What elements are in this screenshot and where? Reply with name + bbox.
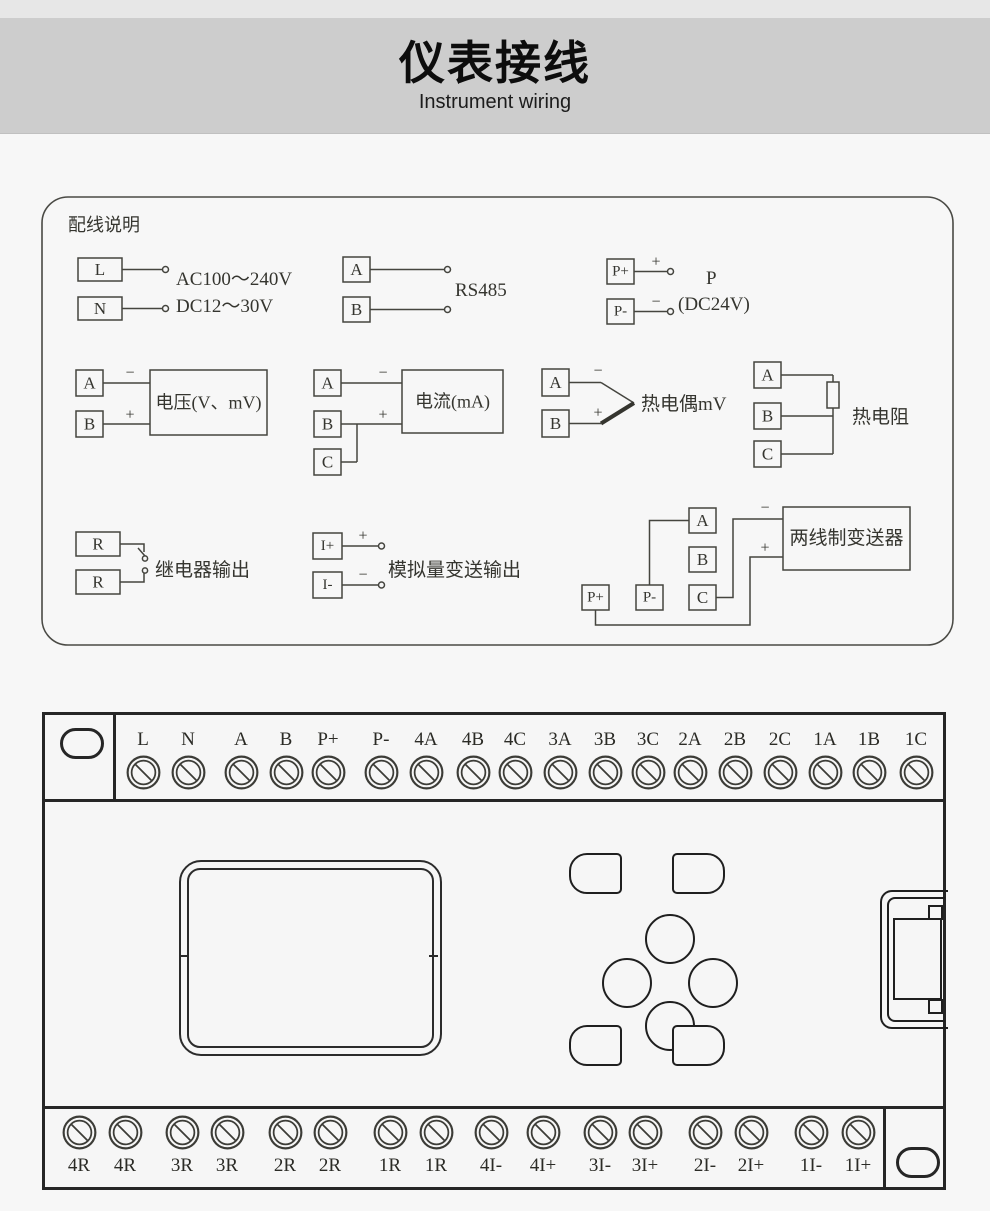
screw-terminal-icon (840, 1114, 877, 1151)
terminal-R2: R (92, 573, 104, 592)
screw-terminal-icon (408, 754, 445, 791)
panel-title: 配线说明 (68, 215, 140, 235)
power-label-dc: DC12～30V (176, 296, 273, 317)
terminal-B: B (322, 415, 333, 434)
terminal-L: L (95, 260, 105, 279)
page-title: 仪表接线 (399, 38, 591, 88)
bottom-strip-divider (45, 1106, 943, 1109)
screw-terminal-icon (733, 1114, 770, 1151)
terminal-A: A (696, 511, 709, 530)
screw-terminal-icon (455, 754, 492, 791)
bottom-terminal-3I-minus: 3I- (578, 1114, 622, 1177)
screw-terminal-icon (672, 754, 709, 791)
mounting-hole-bottom-right (896, 1147, 940, 1178)
key-left (602, 958, 652, 1008)
screw-terminal-icon (687, 1114, 724, 1151)
top-terminal-1C: 1C (894, 729, 938, 791)
minus-sign: − (593, 363, 602, 380)
screw-terminal-icon (525, 1114, 562, 1151)
plus-sign: + (760, 540, 769, 557)
terminal-B: B (84, 415, 95, 434)
mounting-hole-top-left (60, 728, 104, 759)
terminal-P-minus: P- (614, 304, 627, 320)
thermocouple-label: 热电偶mV (641, 393, 727, 415)
wiring-instructions-panel: 配线说明 L N AC100～240V DC12～30V A B RS485 (0, 175, 990, 665)
side-connector-socket (893, 918, 942, 1000)
minus-sign: − (651, 294, 660, 311)
bottom-terminal-4R-a: 4R (57, 1114, 101, 1177)
plus-sign: + (125, 407, 134, 424)
top-terminal-B: B (264, 729, 308, 791)
rs485-diagram: A B RS485 (343, 257, 507, 322)
terminal-B: B (697, 550, 708, 569)
screw-terminal-icon (587, 754, 624, 791)
top-terminal-3C: 3C (626, 729, 670, 791)
bottom-terminal-3I-plus: 3I+ (623, 1114, 667, 1177)
top-terminal-A: A (219, 729, 263, 791)
power-label-ac: AC100～240V (176, 269, 292, 290)
terminal-I-minus: I- (323, 577, 333, 593)
plus-sign: + (358, 528, 367, 545)
screw-terminal-icon (268, 754, 305, 791)
screw-terminal-icon (418, 1114, 455, 1151)
screw-terminal-icon (209, 1114, 246, 1151)
page-subtitle: Instrument wiring (419, 90, 571, 114)
terminal-A: A (350, 260, 363, 279)
top-terminal-3A: 3A (538, 729, 582, 791)
bottom-terminal-2I-plus: 2I+ (729, 1114, 773, 1177)
terminal-C: C (697, 588, 708, 607)
screw-terminal-icon (125, 754, 162, 791)
key-bottom-right (672, 1025, 725, 1066)
key-top-left (569, 853, 622, 894)
rs485-label: RS485 (455, 280, 507, 301)
screw-terminal-icon (372, 1114, 409, 1151)
bottom-terminal-2I-minus: 2I- (683, 1114, 727, 1177)
voltage-input-diagram: A B − + 电压(V、mV) (76, 365, 267, 438)
screw-terminal-icon (170, 754, 207, 791)
top-terminal-P-minus: P- (359, 729, 403, 791)
bottom-terminal-1I-minus: 1I- (789, 1114, 833, 1177)
screw-terminal-icon (793, 1114, 830, 1151)
terminal-P-minus: P- (643, 590, 656, 606)
top-terminal-2B: 2B (713, 729, 757, 791)
terminal-A: A (761, 366, 774, 385)
screw-terminal-icon (627, 1114, 664, 1151)
screw-terminal-icon (107, 1114, 144, 1151)
current-input-diagram: A B C − + 电流(mA) (314, 365, 503, 476)
relay-output-diagram: R R 继电器输出 (76, 532, 250, 594)
thermocouple-diagram: A B − + 热电偶mV (542, 363, 727, 438)
top-terminal-4B: 4B (451, 729, 495, 791)
bottom-terminal-1R-b: 1R (414, 1114, 458, 1177)
dc24-label-p: P (706, 268, 717, 289)
bottom-terminal-4I-minus: 4I- (469, 1114, 513, 1177)
header-top-strip (0, 0, 990, 18)
screw-terminal-icon (164, 1114, 201, 1151)
instrument-rear-panel: L N A B P+ P- 4A 4B 4C 3A 3B 3C 2A 2B 2C… (42, 712, 946, 1190)
bottom-terminal-3R-b: 3R (205, 1114, 249, 1177)
terminal-B: B (762, 407, 773, 426)
screw-terminal-icon (582, 1114, 619, 1151)
key-top-right (672, 853, 725, 894)
rtd-diagram: A B C 热电阻 (754, 362, 909, 467)
screw-terminal-icon (898, 754, 935, 791)
key-up (645, 914, 695, 964)
bottom-terminal-4I-plus: 4I+ (521, 1114, 565, 1177)
bottom-terminal-2R-b: 2R (308, 1114, 352, 1177)
top-strip-left-divider (113, 715, 116, 799)
transmitter-diagram: A B C P+ P- − + 两线制变送器 (582, 500, 910, 626)
screw-terminal-icon (310, 754, 347, 791)
top-terminal-4C: 4C (493, 729, 537, 791)
top-terminal-1A: 1A (803, 729, 847, 791)
screw-terminal-icon (717, 754, 754, 791)
voltage-label: 电压(V、mV) (156, 393, 262, 414)
screw-terminal-icon (630, 754, 667, 791)
screw-terminal-icon (762, 754, 799, 791)
terminal-C: C (322, 453, 333, 472)
side-connector-tab-top (928, 905, 943, 920)
key-bottom-left (569, 1025, 622, 1066)
power-supply-diagram: L N AC100～240V DC12～30V (78, 258, 292, 320)
terminal-R1: R (92, 535, 104, 554)
screw-terminal-icon (497, 754, 534, 791)
terminal-P-plus: P+ (587, 590, 604, 606)
terminal-B: B (550, 414, 561, 433)
rtd-label: 热电阻 (852, 406, 909, 428)
dc24v-diagram: P+ P- + − P (DC24V) (607, 254, 750, 325)
bottom-terminal-3R-a: 3R (160, 1114, 204, 1177)
display-bezel-tick-left (179, 955, 188, 957)
screw-terminal-icon (363, 754, 400, 791)
top-strip-divider (45, 799, 943, 802)
current-label: 电流(mA) (415, 392, 490, 413)
screw-terminal-icon (223, 754, 260, 791)
transmitter-label: 两线制变送器 (789, 527, 903, 549)
minus-sign: − (378, 365, 387, 382)
side-connector-tab-bottom (928, 999, 943, 1014)
page: 仪表接线 Instrument wiring 配线说明 L N AC100～24… (0, 0, 990, 1211)
display-bezel-tick-right (429, 955, 438, 957)
dc24-label-v: (DC24V) (678, 294, 750, 315)
plus-sign: + (593, 405, 602, 422)
bottom-terminal-2R-a: 2R (263, 1114, 307, 1177)
screw-terminal-icon (312, 1114, 349, 1151)
terminal-A: A (549, 373, 562, 392)
bottom-terminal-1I-plus: 1I+ (836, 1114, 880, 1177)
key-right (688, 958, 738, 1008)
display-window-inner (187, 868, 434, 1048)
minus-sign: − (358, 567, 367, 584)
analog-output-label: 模拟量变送输出 (388, 559, 521, 581)
terminal-P-plus: P+ (612, 264, 629, 280)
analog-output-diagram: I+ I- + − 模拟量变送输出 (313, 528, 521, 599)
minus-sign: − (760, 500, 769, 517)
top-terminal-P-plus: P+ (306, 729, 350, 791)
relay-label: 继电器输出 (155, 559, 250, 581)
top-terminal-2A: 2A (668, 729, 712, 791)
screw-terminal-icon (542, 754, 579, 791)
screw-terminal-icon (267, 1114, 304, 1151)
terminal-B: B (351, 300, 362, 319)
header-band: 仪表接线 Instrument wiring (0, 18, 990, 134)
top-terminal-3B: 3B (583, 729, 627, 791)
top-terminal-N: N (166, 729, 210, 791)
screw-terminal-icon (473, 1114, 510, 1151)
resistor-symbol (827, 382, 839, 408)
screw-terminal-icon (851, 754, 888, 791)
screw-terminal-icon (807, 754, 844, 791)
bottom-terminal-4R-b: 4R (103, 1114, 147, 1177)
bottom-strip-right-divider (883, 1109, 886, 1187)
minus-sign: − (125, 365, 134, 382)
plus-sign: + (378, 407, 387, 424)
top-terminal-1B: 1B (847, 729, 891, 791)
terminal-A: A (321, 374, 334, 393)
plus-sign: + (651, 254, 660, 271)
screw-terminal-icon (61, 1114, 98, 1151)
bottom-terminal-1R-a: 1R (368, 1114, 412, 1177)
terminal-N: N (94, 299, 106, 318)
terminal-I-plus: I+ (321, 538, 334, 554)
terminal-C: C (762, 445, 773, 464)
top-terminal-L: L (121, 729, 165, 791)
top-terminal-2C: 2C (758, 729, 802, 791)
top-terminal-4A: 4A (404, 729, 448, 791)
terminal-A: A (83, 374, 96, 393)
